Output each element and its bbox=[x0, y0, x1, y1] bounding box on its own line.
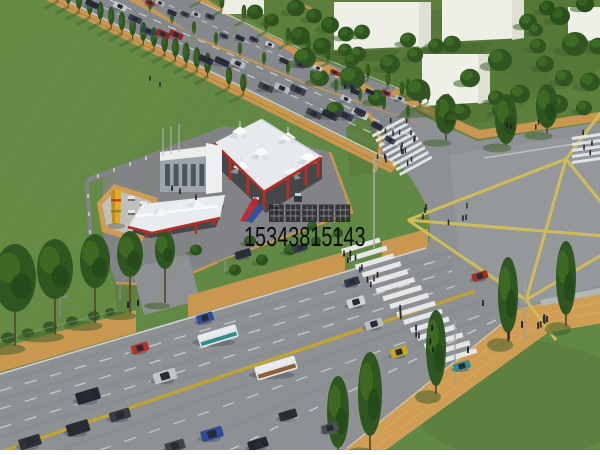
svg-text:15343815143: 15343815143 bbox=[244, 222, 366, 253]
